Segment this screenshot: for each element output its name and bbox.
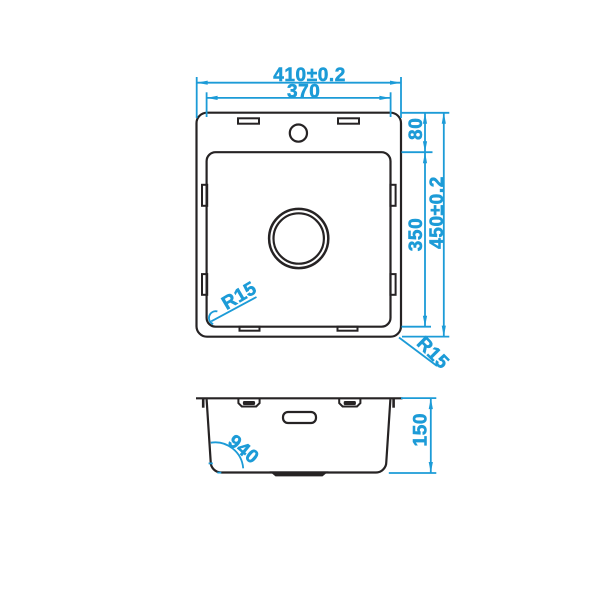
svg-text:940: 940 (224, 431, 263, 469)
svg-text:R15: R15 (218, 278, 260, 315)
svg-text:350: 350 (406, 218, 427, 252)
svg-text:450±0.2: 450±0.2 (427, 176, 448, 249)
svg-text:R15: R15 (412, 333, 453, 374)
svg-text:80: 80 (406, 118, 427, 140)
svg-text:370: 370 (287, 82, 321, 103)
svg-text:150: 150 (410, 413, 431, 447)
